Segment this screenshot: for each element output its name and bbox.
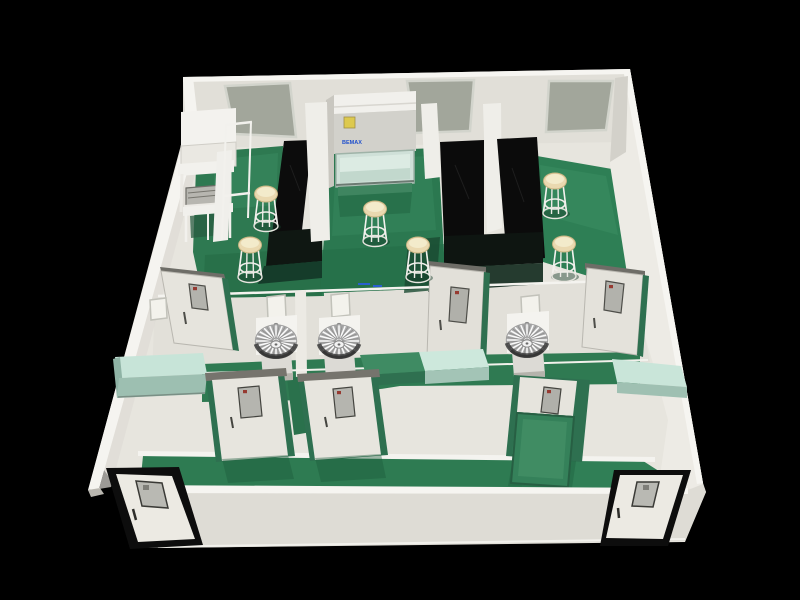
svg-text:BEMAX: BEMAX [342, 140, 362, 146]
